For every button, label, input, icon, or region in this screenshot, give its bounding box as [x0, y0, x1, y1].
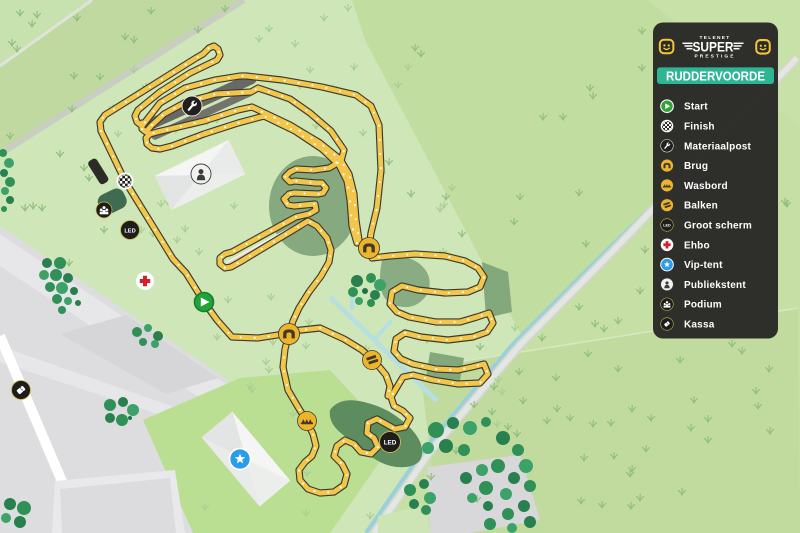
- svg-text:LED: LED: [384, 440, 397, 447]
- svg-text:Wasbord: Wasbord: [684, 181, 728, 192]
- svg-text:RUDDERVOORDE: RUDDERVOORDE: [666, 68, 765, 83]
- svg-text:Balken: Balken: [684, 201, 718, 212]
- svg-text:Ehbo: Ehbo: [684, 240, 710, 251]
- svg-text:Vip-tent: Vip-tent: [684, 260, 723, 271]
- svg-text:Publiekstent: Publiekstent: [684, 280, 746, 291]
- svg-text:Groot scherm: Groot scherm: [684, 221, 752, 232]
- svg-text:LED: LED: [124, 228, 135, 234]
- svg-text:PRESTIGE: PRESTIGE: [694, 53, 735, 59]
- svg-text:Materiaalpost: Materiaalpost: [684, 141, 752, 152]
- svg-text:SUPER: SUPER: [693, 38, 734, 54]
- svg-text:Kassa: Kassa: [684, 320, 715, 331]
- svg-text:LED: LED: [663, 224, 671, 228]
- svg-text:Start: Start: [684, 102, 708, 113]
- svg-text:Finish: Finish: [684, 122, 715, 133]
- svg-text:Podium: Podium: [684, 300, 722, 311]
- svg-text:Brug: Brug: [684, 161, 708, 172]
